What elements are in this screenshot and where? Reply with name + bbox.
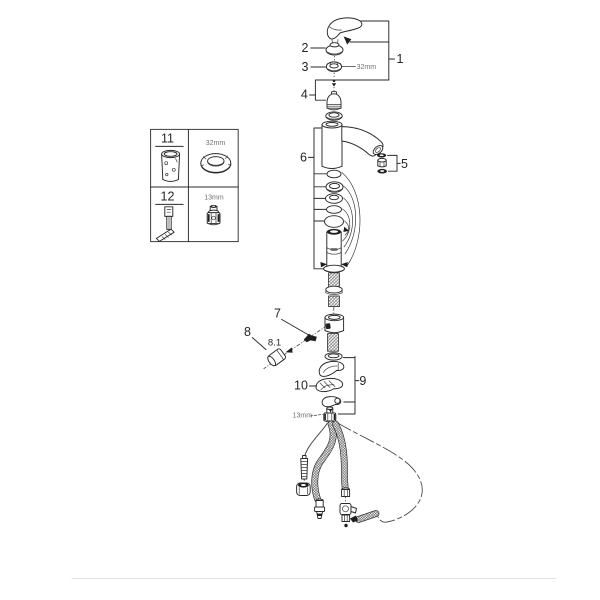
nut-size-label: 32mm (357, 64, 377, 71)
callout-3: 3 (302, 60, 309, 74)
braided-hose-right (336, 424, 357, 527)
top-assembly: 1 2 3 32mm (301, 18, 404, 120)
callout-7: 7 (274, 307, 281, 321)
faucet-exploded-diagram: 1 2 3 32mm (0, 0, 600, 600)
hose-nut-size-label: 13mm (293, 413, 313, 420)
callout-10: 10 (294, 379, 308, 393)
lower-o-ring-drawing (325, 353, 342, 360)
callout-9: 9 (359, 374, 366, 388)
callout-4-bracket (310, 80, 389, 100)
size-leader-dashes (310, 414, 322, 416)
lever-handle-drawing (327, 18, 362, 43)
part-10-clamp-drawing (316, 378, 343, 391)
inset-tool-panel: 11 32mm 12 (151, 129, 239, 241)
hoses-group (297, 423, 423, 528)
spout-drawing (342, 127, 385, 157)
inset-tool-12-number: 12 (161, 190, 175, 204)
under-counter-group: 7 8 8.1 10 (244, 307, 366, 423)
callout-1: 1 (397, 52, 404, 66)
part-3-nut-drawing (311, 62, 356, 72)
inset-tool-11-number: 11 (161, 132, 174, 146)
hex-fitting-drawing (324, 407, 336, 422)
part-4-cartridge-drawing (327, 80, 341, 110)
lower-threads-drawing (328, 334, 339, 352)
inset-ring-drawing (201, 154, 231, 173)
body-drawing (322, 121, 342, 168)
o-ring-stack-drawing (325, 170, 344, 227)
base-flange-drawing (324, 265, 345, 272)
callout-6-bracket (308, 128, 326, 269)
threaded-shank-drawing (326, 273, 342, 315)
callout-6: 6 (300, 151, 307, 165)
part-2-cap-drawing (311, 43, 343, 55)
inset-tool-11-size: 32mm (206, 140, 226, 147)
callout-2: 2 (302, 41, 309, 55)
faucet-body-group: 5 6 (300, 121, 408, 314)
inset-tool-12-size: 13mm (204, 195, 224, 202)
braided-hose-left (315, 424, 334, 519)
callout-5-bracket (388, 155, 401, 171)
collar-drawing (325, 314, 344, 333)
callout-8: 8 (244, 325, 251, 339)
callout-8-1: 8.1 (268, 338, 281, 349)
clip-drawing (322, 397, 341, 413)
hook-plate-drawing (319, 361, 344, 376)
left-plug-drawing (297, 456, 311, 496)
parts-diagram-canvas: 1 2 3 32mm (0, 0, 600, 600)
callout-5: 5 (401, 157, 408, 171)
braided-stub-right (350, 514, 376, 523)
part-8-cone-drawing (286, 347, 293, 352)
cartridge-ring-drawing (326, 109, 342, 120)
part-5-aerator-drawing (377, 153, 387, 173)
shank-cylinder-drawing (327, 229, 341, 268)
part-7-valve-drawing (304, 334, 317, 342)
part-8-adapter-drawing (266, 348, 286, 367)
callout-4: 4 (301, 88, 308, 102)
